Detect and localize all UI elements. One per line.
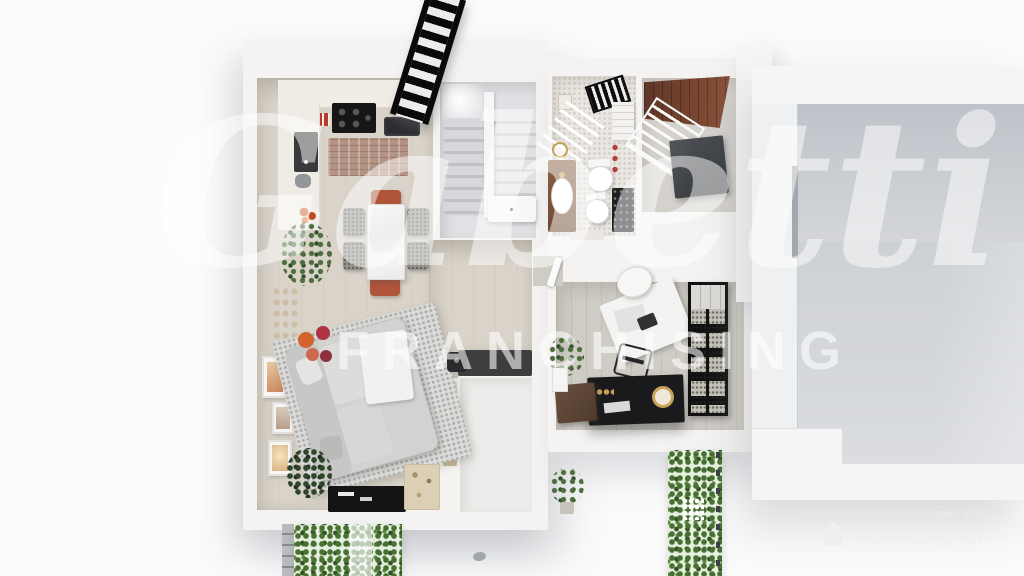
- bidet: [582, 191, 611, 226]
- right-room-bottom-step: [752, 428, 842, 500]
- small-gray-bird: [472, 551, 487, 563]
- bookshelf-top-boxes: [691, 285, 725, 309]
- oven-knob: [304, 160, 308, 164]
- corner-watermark-caption: Designed with: [884, 508, 1012, 518]
- stair-flight-right: [492, 112, 536, 200]
- gold-wall-clock: [652, 386, 674, 408]
- entry-doormat: [458, 350, 532, 376]
- console-gold-decor: [596, 388, 614, 396]
- flower-coral: [306, 348, 319, 361]
- stove-cooktop: [332, 103, 376, 133]
- ajar-door-slit: [792, 166, 798, 258]
- bidet-bowl: [584, 198, 610, 225]
- floorplan-render: Gabetti FRANCHISING Designed with homest…: [0, 0, 1024, 576]
- flower-orange: [298, 332, 314, 348]
- beige-sideboard: [404, 464, 440, 510]
- dining-table-marble: [367, 204, 405, 280]
- hedge-light-patch: [350, 524, 372, 576]
- side-table-item: [454, 358, 459, 363]
- potted-plant-foliage: [550, 468, 584, 504]
- vanity-mirror-gold: [552, 142, 568, 158]
- washer-cabinet: [669, 135, 729, 198]
- tv-remote: [360, 497, 372, 501]
- flower-arrangement: [298, 326, 338, 372]
- hanging-ornaments: [272, 286, 298, 340]
- right-room-left-wall-face: [752, 104, 798, 464]
- hallway-floor: [429, 240, 532, 352]
- left-margin: [0, 0, 200, 576]
- built-in-oven: [294, 132, 318, 172]
- dining-plant: [280, 222, 332, 286]
- brick-runner-rug: [328, 138, 408, 176]
- porch-floor: [460, 378, 532, 512]
- dark-houseplant: [286, 448, 332, 498]
- potted-plant-exterior: [550, 468, 584, 516]
- homestyler-logo-icon: [820, 522, 846, 546]
- toilet: [585, 157, 615, 193]
- dining-chair: [343, 208, 365, 236]
- flower-crimson: [320, 350, 332, 362]
- flower-red: [316, 326, 330, 340]
- vanity-sink: [551, 178, 573, 214]
- dining-chair: [407, 208, 429, 236]
- toilet-bowl: [586, 165, 614, 193]
- kettle: [295, 174, 311, 188]
- plant-pot: [560, 502, 574, 514]
- cabinet-knob: [510, 208, 513, 211]
- head-chair-rust: [370, 278, 400, 296]
- corner-watermark-brand: homestyler: [854, 522, 987, 550]
- bookshelf-black: [688, 282, 728, 416]
- dining-chair: [407, 242, 429, 270]
- right-room-back-wall: [798, 104, 1024, 242]
- office-drawer-unit: [552, 368, 568, 392]
- vanity-faucet-gold: [559, 172, 565, 178]
- garden-fence-right: [716, 452, 720, 570]
- bathroom-door-opening: [570, 232, 604, 240]
- sofa-throw-blanket: [358, 329, 414, 404]
- hedge-white-flowers: [682, 498, 704, 520]
- stair-flight-left: [444, 118, 486, 216]
- hedge-strip-bottom: [294, 524, 402, 576]
- dining-chair: [343, 242, 365, 270]
- corner-watermark: Designed with homestyler: [812, 508, 1012, 560]
- tv-panel: [338, 492, 354, 496]
- bath-black-cabinet: [612, 188, 634, 232]
